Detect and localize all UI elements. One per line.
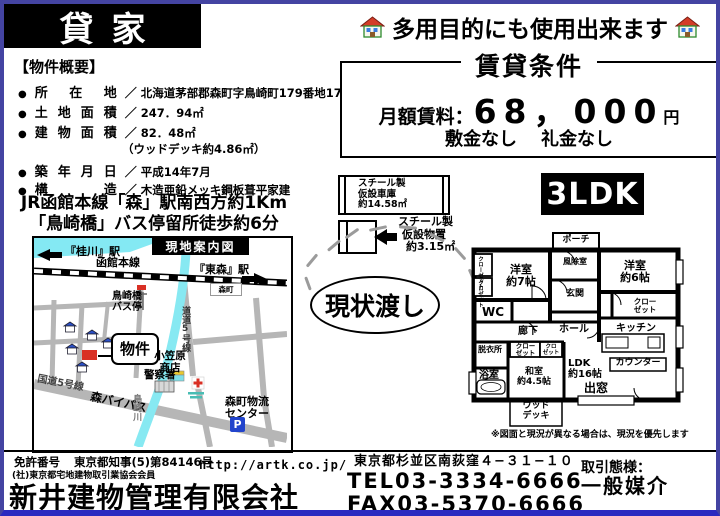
website-url: http://artk.co.jp/ [199,459,347,472]
bullet-icon: ● [18,129,27,140]
floor-plan: ポーチ 風除室 玄関 ホール 洋室 約7帖 洋室 約6帖 クローゼット クロゼッ… [432,230,720,432]
bullet-icon: ● [18,109,27,120]
wood-deck-label: ウッド デッキ [512,402,560,422]
access-line1: JR函館本線「森」駅南西方約1Km [4,194,304,213]
dealing-type-value: 一般媒介 [581,475,669,497]
station-right-label: 『東森』駅 [194,264,249,276]
overview-value: 82．48㎡ [141,125,196,141]
overview-label: 築年月日 [35,161,117,180]
closet-small-line2: ゼット [540,350,562,356]
overview-value: （ウッドデッキ約4.86㎡） [122,141,265,157]
property-marker [82,350,97,360]
overview-label: 土地面積 [35,102,117,121]
garage-line3: 約14.58㎡ [358,200,442,211]
logistics-line2: センター [220,408,274,420]
license-line: 免許番号東京都知事(5)第84146号 [14,456,213,469]
ldk-line2: 約16帖 [568,369,602,380]
no-key-money: 礼金なし [541,129,613,150]
dressing-label: 脱衣所 [478,346,502,355]
west7-line2: 約7帖 [494,276,548,288]
overview-row-location: ● 所在地 ／ 北海道茅部郡森町字鳥崎町179番地17 [18,82,342,101]
police-label: 警察署 [144,370,176,382]
bus-stop-marker [137,285,146,290]
ldk-line1: LDK [568,358,602,369]
porch-label: ポーチ [553,236,599,246]
windbreak-label: 風除室 [551,258,599,267]
river-label: 鳥崎川 [131,394,141,442]
house-icon [675,16,700,39]
deposit-keymoney: 敷金なし礼金なし [342,125,716,151]
closet-line2: ゼット [625,306,665,314]
west-room6-label: 洋室 約6帖 [608,260,662,284]
entrance-label: 玄関 [551,290,599,300]
bath-label: 浴室 [479,370,499,381]
separator: ／ [125,163,137,180]
bullet-icon: ● [18,89,27,100]
parking-icon: P [230,417,245,432]
location-map: 現地案内図 『桂川』駅 函館本線 『東森』駅 森町 鳥崎橋 バス停 物件 小笠原… [32,236,293,453]
shed-door-line [346,222,375,252]
garage-line1: スチール製 [358,179,442,190]
flyer-page: 貸家 多用目的にも使用出来ます 賃貸条件 月額賃料：68，000円 敷金なし礼金… [0,0,720,516]
overview-value: 北海道茅部郡森町字鳥崎町179番地17 [141,85,342,101]
closet-label-west6: クロー ゼット [625,298,665,315]
bus-stop-label: 鳥崎橋 バス停 [107,291,147,313]
logistics-center-label: 森町物流 センター [220,396,274,421]
bus-stop-line2: バス停 [107,302,147,313]
rental-conditions-box: 賃貸条件 月額賃料：68，000円 敷金なし礼金なし [340,61,718,158]
steel-garage-box: スチール製 仮設車庫 約14.58㎡ [338,175,450,215]
as-is-oval: 現状渡し [310,276,440,334]
west-room7-label: 洋室 約7帖 [494,264,548,288]
bathtub-icon [477,380,505,394]
license-number: 東京都知事(5)第84146号 [74,455,213,469]
closet-line2: ゼット [512,350,539,357]
overview-value: 247．94㎡ [141,105,204,121]
closet-label-dressing: クロー ゼット [512,343,539,357]
overview-heading: 【物件概要】 [14,59,104,76]
house-icon [360,16,385,39]
company-name: 新井建物管理有限会社 [9,482,299,513]
corridor-label: 廊下 [518,326,538,337]
telephone-number: TEL03-3334-6666 [347,470,583,494]
no-deposit: 敷金なし [445,129,517,150]
map-title: 現地案内図 [152,238,249,255]
boundary-dash [306,253,319,267]
pref-road-label: 道道5号線 [180,306,190,366]
bus-stop-line1: 鳥崎橋 [107,291,147,302]
footer-divider [4,450,716,452]
ldk-label: LDK 約16帖 [568,358,602,380]
washitsu-line2: 約4.5帖 [510,378,558,388]
company-address: 東京都杉並区南荻窪４−３１−１０ [354,455,574,470]
wc-label: WC [482,306,504,319]
overview-label: 所在地 [35,82,117,101]
west6-line2: 約6帖 [608,272,662,284]
overview-row-building-area: ● 建物面積 ／ 82．48㎡ [18,122,196,141]
washitsu-label: 和室 約4.5帖 [510,368,558,388]
floor-plan-note: ※図面と現況が異なる場合は、現況を優先します [491,430,689,440]
membership-line: (社)東京都宅地建物取引業協会会員 [12,471,155,481]
boundary-dash [304,276,312,290]
overview-row-land-area: ● 土地面積 ／ 247．94㎡ [18,102,204,121]
fax-number: FAX03-5370-6666 [347,493,585,516]
kitchen-counter-icon [602,334,664,352]
layout-badge: 3LDK [541,173,644,215]
overview-value: 平成14年7月 [141,164,211,180]
shed-arrow-icon [374,229,398,245]
separator: ／ [125,124,137,141]
overview-label: 建物面積 [35,122,117,141]
separator: ／ [125,84,137,101]
license-label: 免許番号 [14,455,60,469]
town-label: 森町 [210,283,242,296]
police-building-icon [155,381,174,392]
closet-label-v2: クロゼット [477,280,483,296]
overview-row-built-date: ● 築年月日 ／ 平成14年7月 [18,161,211,180]
rail-line-label: 函館本線 [96,257,140,269]
title-banner: 貸家 [4,4,201,48]
closet-label-washitsu: クロ ゼット [540,344,562,356]
counter-label: カウンター [611,359,665,369]
hall-label: ホール [549,324,599,335]
rental-title: 賃貸条件 [461,47,597,83]
steel-garage-text: スチール製 仮設車庫 約14.58㎡ [344,177,444,213]
closet-label-v1: クローゼット [477,256,483,276]
deck-line2: デッキ [512,412,560,422]
bullet-icon: ● [18,168,27,179]
access-line2: 「鳥崎橋」バス停留所徒歩約6分 [4,215,304,234]
separator: ／ [125,104,137,121]
tagline: 多用目的にも使用出来ます [340,9,720,45]
page-title: 貸家 [42,2,164,51]
tagline-text: 多用目的にも使用出来ます [392,10,668,44]
bay-window-label: 出窓 [584,382,608,395]
overview-row-wood-deck: （ウッドデッキ約4.86㎡） [122,141,265,157]
kitchen-label: キッチン [616,323,656,334]
